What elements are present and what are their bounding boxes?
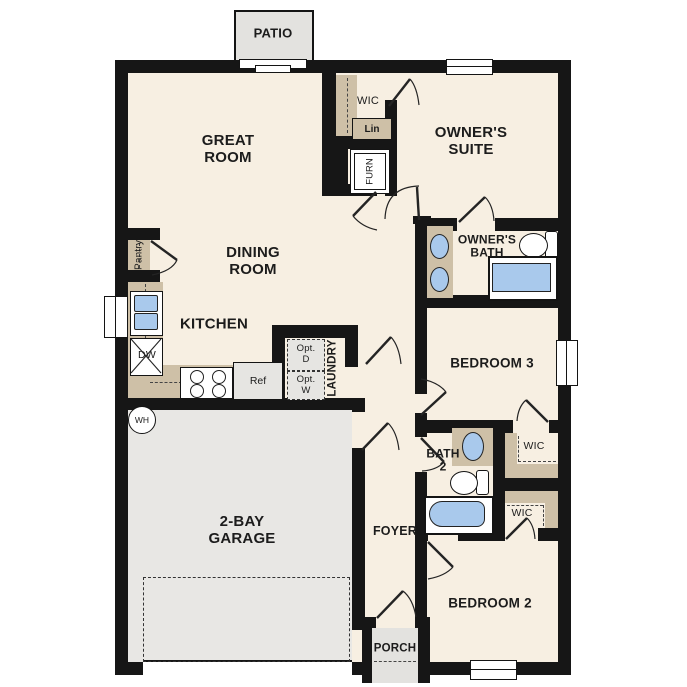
bath2-tub-basin [429, 501, 485, 527]
wic2-dash-v [543, 505, 544, 526]
pantry-label: Pantry [133, 240, 144, 270]
owner-suite-window [446, 59, 493, 75]
sink-basin-top [134, 295, 158, 312]
owner-shower [488, 256, 558, 301]
owner-suite-label: OWNER'S SUITE [435, 125, 507, 159]
opt-dryer: Opt. D [287, 339, 325, 371]
wall-left [115, 60, 128, 675]
wall-wic-divider [493, 478, 558, 491]
garage-door-dash [143, 577, 350, 662]
porch-slab [372, 628, 418, 683]
opt-dryer-label: Opt. D [297, 344, 316, 365]
porch-label: PORCH [374, 643, 417, 656]
garage-label: 2-BAY GARAGE [208, 514, 275, 548]
burner [190, 370, 204, 384]
floor-plan: PATIO PORCH Lin FURN [0, 0, 687, 687]
wall-obath-top-r [495, 218, 558, 231]
bedroom3-label: BEDROOM 3 [450, 355, 534, 370]
wall-wic-left [322, 73, 336, 196]
refrigerator: Ref [233, 362, 283, 400]
porch-column-right [418, 630, 430, 683]
wic3-dash-v [518, 436, 519, 462]
owner-toilet-bowl [519, 233, 548, 258]
opt-washer: Opt. W [287, 371, 325, 400]
wic2-shelf-right [545, 491, 558, 528]
great-room-label: GREAT ROOM [202, 133, 254, 167]
owner-shower-pan [492, 263, 551, 292]
bath2-label: BATH 2 [426, 448, 459, 475]
patio-slider-panel-2 [255, 65, 291, 73]
wall-pantry-top [115, 228, 160, 240]
furnace-unit: FURN [350, 149, 390, 194]
wall-top [115, 60, 571, 73]
wall-bottom-left [115, 662, 143, 675]
wall-laundry-right [345, 325, 358, 367]
owner-bath-label: OWNER'S BATH [458, 234, 516, 261]
owner-sink-1 [430, 234, 449, 259]
counter-dash-h [150, 382, 182, 383]
owner-wic-label: WIC [357, 95, 379, 107]
bath2-sink [462, 432, 484, 461]
wall-garage-right-b [352, 448, 365, 620]
foyer-label: FOYER [373, 524, 417, 538]
refrigerator-label: Ref [250, 375, 266, 387]
kitchen-sink [130, 291, 163, 336]
wall-bed3-bottom-r [549, 420, 558, 433]
bath2-toilet-bowl [450, 471, 478, 495]
wic3-shelf-bottom [505, 464, 558, 478]
kitchen-window [104, 296, 128, 338]
wall-garage-right-a [352, 398, 365, 412]
range [180, 367, 233, 399]
wic3-dash-h [518, 461, 556, 462]
wall-pantry-bottom [115, 270, 160, 282]
wic-bed3-label: WIC [523, 441, 544, 453]
bedroom2-label: BEDROOM 2 [448, 595, 532, 610]
wall-bed2-top-c [538, 528, 558, 541]
burner [190, 384, 204, 398]
dishwasher-label: DW [137, 350, 157, 362]
linen-closet: Lin [352, 118, 392, 140]
kitchen-label: KITCHEN [180, 317, 248, 334]
bedroom2-window [470, 660, 517, 680]
burner [212, 384, 226, 398]
furnace-label: FURN [364, 158, 375, 184]
burner [212, 370, 226, 384]
laundry-label: LAUNDRY [327, 339, 340, 396]
water-heater-label: WH [135, 415, 149, 425]
porch-column-left [362, 630, 372, 683]
wic-bed2-label: WIC [511, 508, 532, 520]
bath2-tub [424, 496, 494, 535]
water-heater: WH [128, 406, 156, 434]
owner-wic-rod-dash [347, 78, 348, 133]
owner-sink-2 [430, 267, 449, 292]
sink-basin-bottom [134, 313, 158, 330]
porch-edge-dash [374, 661, 416, 662]
wall-bed3-left [415, 295, 427, 394]
bedroom3-window [556, 340, 578, 386]
dining-room-label: DINING ROOM [226, 245, 280, 279]
wall-foyer-front-r [416, 617, 430, 630]
linen-label: Lin [365, 124, 380, 135]
opt-washer-label: Opt. W [297, 375, 316, 396]
wall-obath-left [415, 222, 427, 300]
patio-label: PATIO [254, 27, 293, 42]
wic2-dash-h [507, 505, 543, 506]
